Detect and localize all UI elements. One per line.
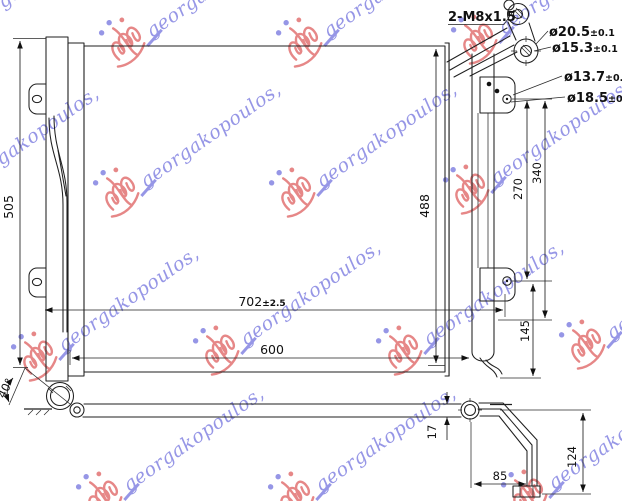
upper-hole-center: [506, 98, 508, 100]
watermark: [87, 60, 287, 220]
lower-left-ear-hole: [32, 278, 41, 285]
upper-left-ear: [29, 84, 46, 114]
dim-overall-width: 702±2.5: [238, 294, 285, 309]
watermark: [5, 224, 205, 384]
lower-port-inner: [521, 46, 532, 57]
port-inner-dia-callout: ø15.3±0.1: [552, 41, 618, 56]
receiver-drier: [472, 54, 502, 377]
right-pipe-outer: [461, 401, 479, 419]
watermark: [70, 364, 270, 501]
port-outer-dia-callout: ø20.5±0.1: [549, 25, 615, 40]
lower-hole-center: [506, 280, 508, 282]
dim-core-height: 488: [417, 194, 432, 218]
stud-hole-dia-callout: ø13.7±0.1: [564, 70, 622, 85]
dim-overall-height: 505: [1, 195, 16, 219]
dim-thickness: 17: [425, 425, 439, 440]
upper-left-ear-hole: [32, 95, 41, 102]
left-small-pipe-inner: [74, 407, 80, 413]
dim-mount-span-outer: 340: [530, 162, 544, 184]
watermark: [93, 0, 293, 69]
bracket-hole-dia-callout: ø18.5±0.1: [567, 91, 622, 106]
upper-right-bracket: [480, 77, 515, 113]
dim-foot-offset: 85: [493, 469, 508, 483]
dim-bracket-drop: 124: [565, 446, 579, 468]
left-tank: [46, 37, 68, 381]
watermark: [263, 60, 463, 220]
dim-mount-span-inner: 270: [511, 178, 525, 200]
watermark: [270, 0, 470, 69]
watermark: [187, 218, 387, 378]
lower-left-ear: [29, 268, 46, 297]
drawing-canvas: georgakopoulos,: [0, 0, 622, 501]
watermark: [370, 218, 570, 378]
upper-bracket-screw-1: [487, 82, 492, 87]
left-small-pipe-outer: [70, 403, 84, 417]
thread-callout: 2-M8x1.5: [448, 10, 516, 25]
dim-mount-to-bottom: 145: [518, 320, 532, 342]
left-tank-pipes: [49, 116, 67, 332]
watermark: [0, 0, 107, 66]
right-pipe-inner: [465, 405, 476, 416]
condenser-technical-drawing: georgakopoulos,: [0, 0, 622, 501]
watermark: [495, 362, 622, 501]
dim-pipe-angle: 40°: [0, 376, 16, 401]
dim-core-width: 600: [260, 342, 284, 357]
upper-bracket-screw-2: [495, 89, 500, 94]
bracket-outer-edge: [479, 403, 537, 486]
watermark-layer: [0, 0, 622, 501]
watermark: [553, 212, 622, 372]
